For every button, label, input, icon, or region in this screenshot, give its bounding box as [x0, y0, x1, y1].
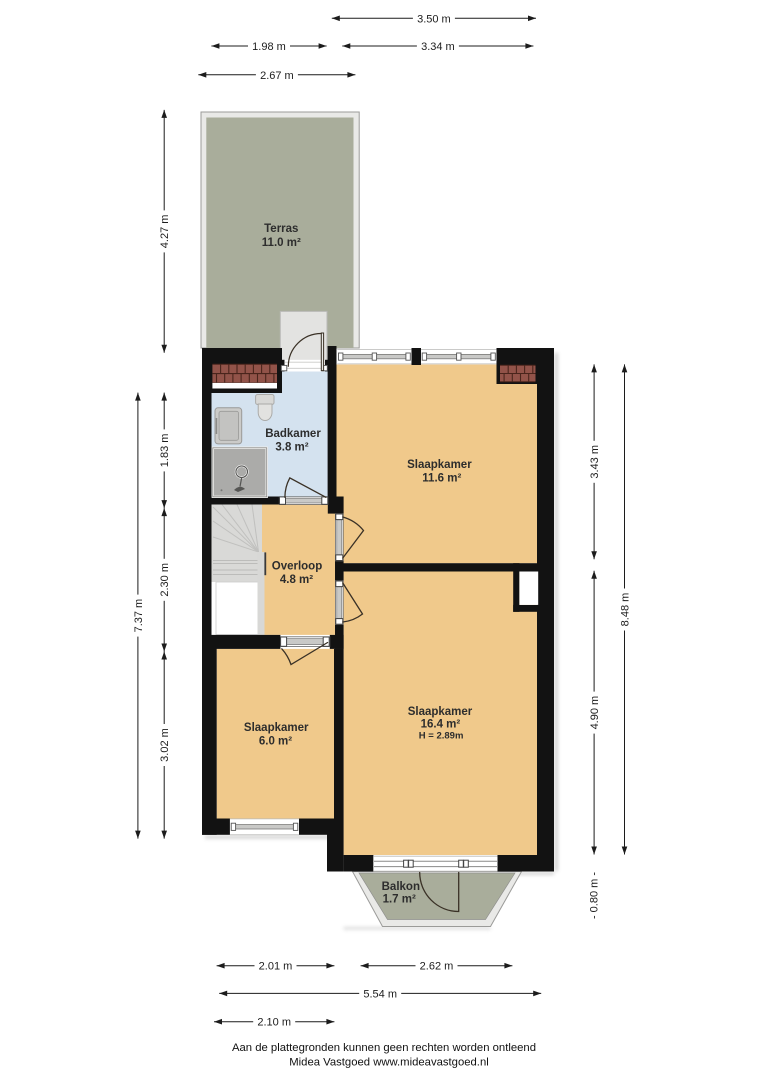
- svg-text:16.4 m²: 16.4 m²: [421, 719, 461, 731]
- svg-text:- 0.80 m -: - 0.80 m -: [589, 872, 601, 919]
- svg-text:3.02 m: 3.02 m: [159, 728, 171, 762]
- svg-text:2.01 m: 2.01 m: [259, 961, 293, 973]
- svg-text:Terras: Terras: [264, 223, 298, 235]
- svg-text:Badkamer: Badkamer: [265, 428, 321, 440]
- svg-text:2.62 m: 2.62 m: [420, 961, 454, 973]
- svg-text:Balkon: Balkon: [382, 881, 420, 893]
- svg-text:Slaapkamer: Slaapkamer: [244, 722, 309, 734]
- svg-text:7.37 m: 7.37 m: [133, 599, 145, 633]
- svg-text:4.90 m: 4.90 m: [589, 696, 601, 730]
- svg-text:2.10 m: 2.10 m: [257, 1017, 291, 1029]
- svg-text:Aan de plattegronden kunnen ge: Aan de plattegronden kunnen geen rechten…: [232, 1042, 536, 1054]
- svg-text:H = 2.89m: H = 2.89m: [419, 731, 464, 742]
- svg-text:11.6 m²: 11.6 m²: [422, 473, 461, 485]
- svg-text:3.43 m: 3.43 m: [589, 445, 601, 479]
- svg-text:Slaapkamer: Slaapkamer: [407, 459, 472, 471]
- svg-text:Slaapkamer: Slaapkamer: [408, 706, 473, 718]
- svg-text:3.8 m²: 3.8 m²: [275, 442, 308, 454]
- svg-text:Midea Vastgoed www.mideavastgo: Midea Vastgoed www.mideavastgoed.nl: [289, 1057, 488, 1069]
- svg-text:1.98 m: 1.98 m: [252, 41, 286, 53]
- svg-text:4.27 m: 4.27 m: [159, 215, 171, 249]
- svg-text:3.50 m: 3.50 m: [417, 13, 451, 25]
- svg-text:3.34 m: 3.34 m: [421, 41, 455, 53]
- svg-text:5.54 m: 5.54 m: [363, 988, 397, 1000]
- svg-text:2.67 m: 2.67 m: [260, 70, 294, 82]
- svg-text:1.83 m: 1.83 m: [159, 434, 171, 468]
- svg-text:1.7 m²: 1.7 m²: [383, 894, 416, 906]
- svg-text:Overloop: Overloop: [272, 561, 322, 573]
- svg-text:2.30 m: 2.30 m: [159, 563, 171, 597]
- svg-text:4.8 m²: 4.8 m²: [280, 574, 313, 586]
- svg-text:11.0 m²: 11.0 m²: [262, 237, 301, 249]
- svg-text:8.48 m: 8.48 m: [620, 593, 632, 627]
- svg-text:6.0 m²: 6.0 m²: [259, 736, 292, 748]
